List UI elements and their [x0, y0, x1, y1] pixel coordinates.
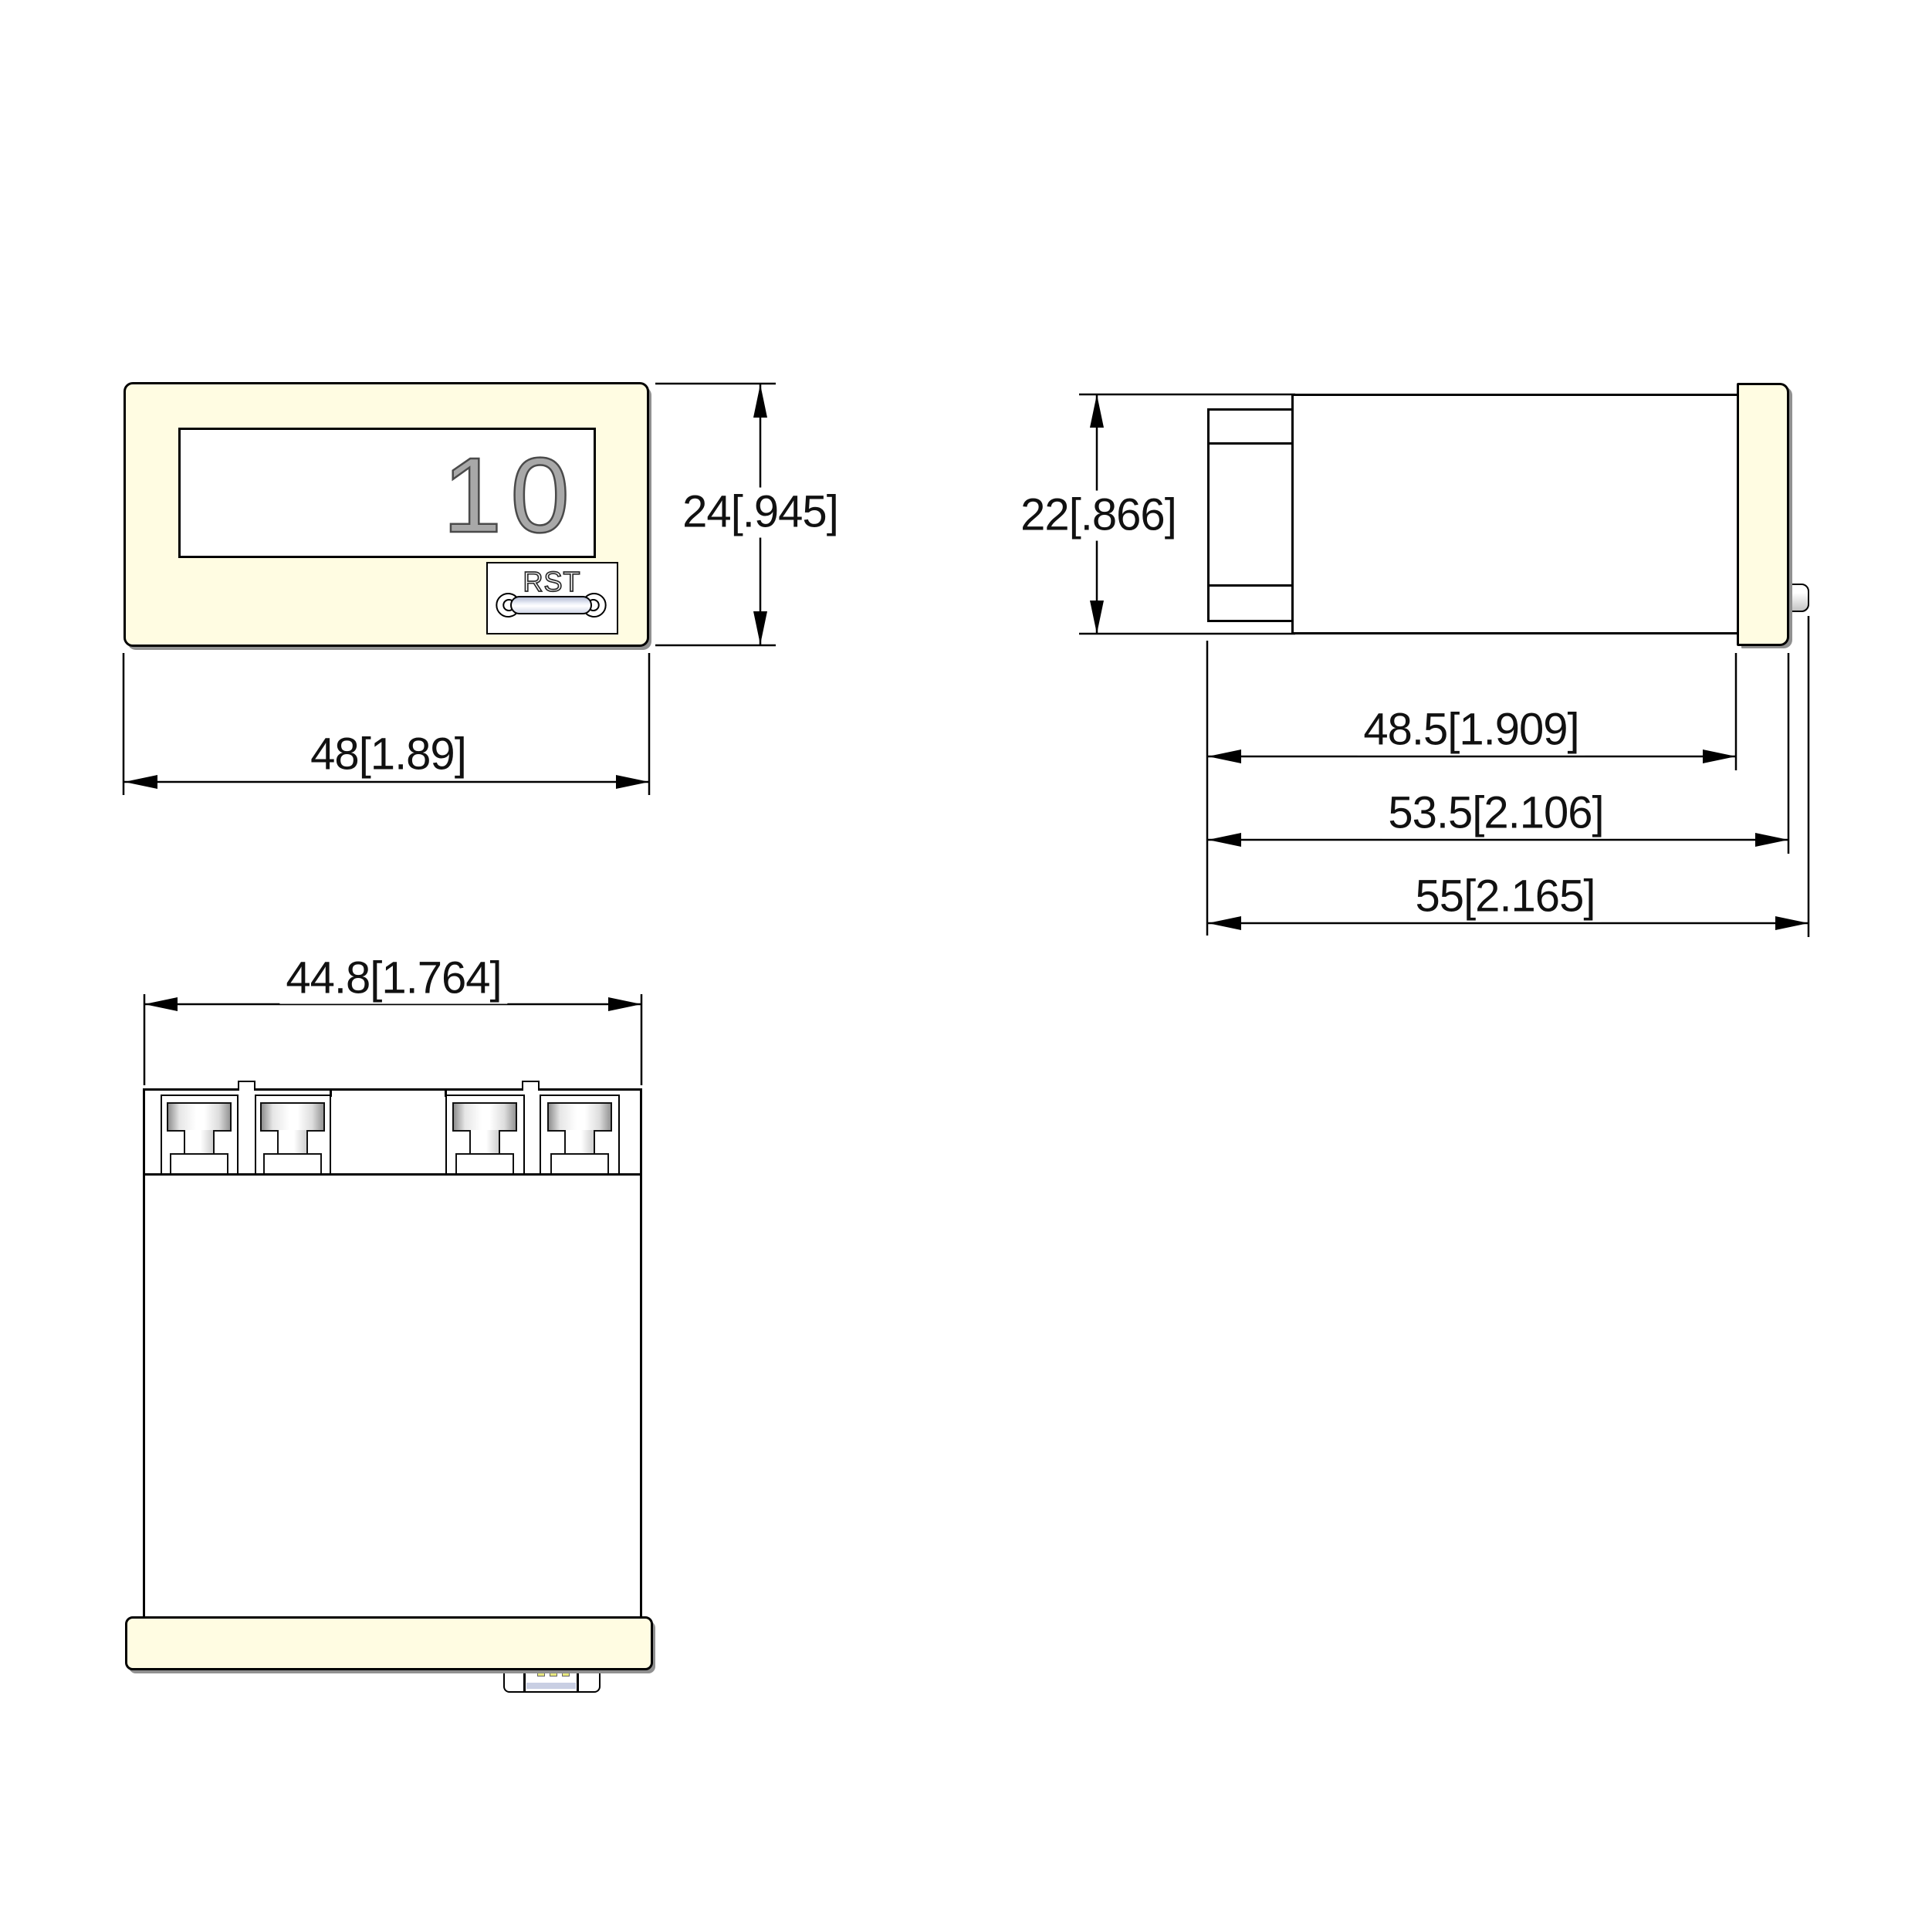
lcd-display: 10	[178, 428, 596, 558]
reset-button-area: RST	[486, 562, 618, 634]
dim-label-side-body-depth: 53.5[2.106]	[1382, 789, 1609, 839]
bottom-front-bezel	[125, 1616, 653, 1670]
terminal-midwall-left	[330, 1088, 332, 1097]
screw-base-icon	[455, 1153, 514, 1175]
reset-slide-pill-icon	[511, 597, 591, 614]
terminal-section-bottom-line	[143, 1173, 642, 1176]
side-rear-latch-block	[1207, 408, 1294, 622]
screw-shaft-icon	[564, 1130, 595, 1155]
screw-base-icon	[263, 1153, 322, 1175]
bottom-rib-left-icon	[238, 1081, 255, 1091]
reset-button-label: RST	[523, 566, 581, 597]
side-connector-pin	[1786, 584, 1809, 612]
bottom-rib-right-icon	[522, 1081, 540, 1091]
terminal-midwall-right	[445, 1088, 447, 1097]
screw-base-icon	[170, 1153, 228, 1175]
reset-button-icon: RST	[488, 563, 616, 632]
side-latch-top-edge	[1207, 442, 1294, 445]
side-outline-stub-bottom	[1291, 618, 1294, 634]
side-latch-bottom-edge	[1207, 584, 1294, 587]
technical-drawing-canvas: 10 RST	[0, 0, 1932, 1932]
screw-shaft-icon	[277, 1130, 308, 1155]
screw-shaft-icon	[469, 1130, 500, 1155]
connector-slot-icon	[526, 1683, 576, 1689]
side-outline-stub-top	[1291, 394, 1294, 411]
screw-icon	[167, 1102, 232, 1132]
dim-label-side-panel-depth: 48.5[1.909]	[1357, 705, 1585, 756]
display-value: 10	[442, 428, 578, 557]
screw-icon	[452, 1102, 517, 1132]
screw-shaft-icon	[184, 1130, 215, 1155]
screw-icon	[547, 1102, 612, 1132]
dim-label-front-height: 24[.945]	[676, 488, 844, 538]
connector-wall-right	[577, 1670, 579, 1691]
connector-wall-left	[523, 1670, 526, 1691]
dim-label-side-height: 22[.866]	[1014, 491, 1183, 541]
side-front-bezel	[1737, 383, 1789, 646]
screw-base-icon	[550, 1153, 609, 1175]
connector-pin-icon	[537, 1671, 545, 1677]
connector-pin-icon	[550, 1671, 557, 1677]
side-body	[1294, 394, 1737, 634]
dim-label-side-overall-depth: 55[2.165]	[1409, 872, 1602, 922]
screw-icon	[260, 1102, 325, 1132]
dim-label-front-width: 48[1.89]	[304, 730, 472, 780]
dim-label-bottom-width: 44.8[1.764]	[279, 954, 507, 1004]
connector-pin-icon	[562, 1671, 570, 1677]
